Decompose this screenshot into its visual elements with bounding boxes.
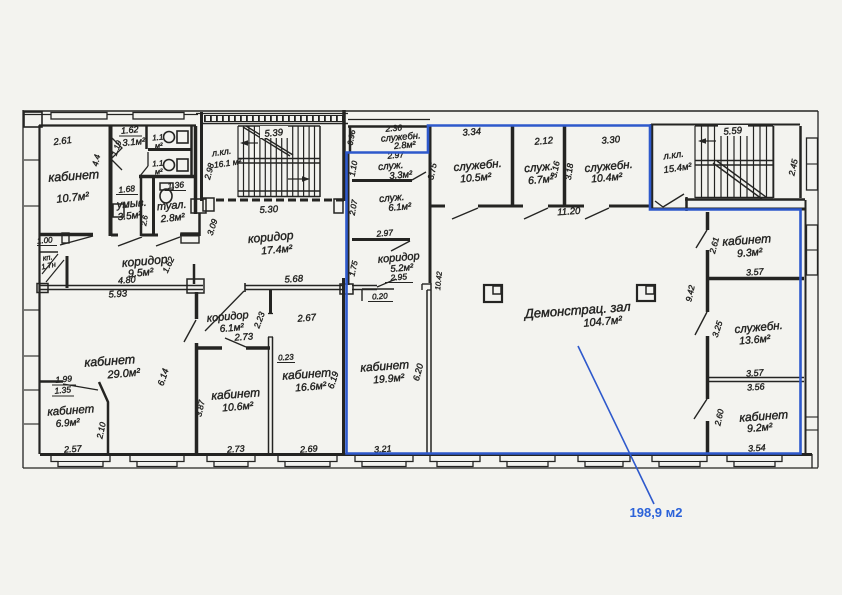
svg-text:5.39: 5.39 [264, 127, 284, 140]
svg-text:16.6м²: 16.6м² [295, 380, 328, 395]
svg-text:3.16: 3.16 [548, 160, 561, 179]
svg-text:кабинет: кабинет [47, 403, 95, 418]
svg-text:2.67: 2.67 [296, 312, 317, 325]
svg-text:10.7м²: 10.7м² [56, 190, 90, 205]
svg-text:3.30: 3.30 [601, 134, 621, 147]
svg-text:29.0м²: 29.0м² [106, 367, 141, 382]
svg-text:2.60: 2.60 [712, 408, 725, 428]
svg-text:2.69: 2.69 [299, 443, 318, 454]
svg-text:1.99: 1.99 [55, 373, 73, 384]
svg-text:3.1м²: 3.1м² [122, 136, 147, 149]
svg-text:3.75: 3.75 [425, 162, 438, 181]
svg-text:6.20: 6.20 [411, 362, 425, 382]
svg-text:2.57: 2.57 [63, 443, 83, 454]
svg-text:104.7м²: 104.7м² [583, 314, 623, 329]
svg-text:2.97: 2.97 [375, 227, 394, 239]
svg-text:3.34: 3.34 [462, 126, 481, 139]
svg-text:10.4м²: 10.4м² [591, 171, 624, 186]
svg-text:3.09: 3.09 [205, 217, 220, 236]
svg-text:1.35: 1.35 [54, 384, 72, 395]
svg-text:6.14: 6.14 [156, 367, 171, 387]
svg-text:3.54: 3.54 [748, 442, 766, 453]
svg-text:м²: м² [155, 141, 164, 151]
svg-text:1.10: 1.10 [348, 160, 360, 177]
svg-text:2.8м²: 2.8м² [159, 212, 186, 226]
svg-text:2.73: 2.73 [226, 443, 245, 454]
svg-text:3.25: 3.25 [710, 319, 725, 338]
svg-text:9.42: 9.42 [683, 284, 696, 303]
svg-text:15.4м²: 15.4м² [663, 161, 693, 176]
svg-text:1.7н: 1.7н [40, 260, 56, 272]
svg-text:2.6: 2.6 [139, 214, 150, 228]
svg-text:3.3м²: 3.3м² [389, 169, 414, 182]
svg-text:13.6м²: 13.6м² [739, 333, 772, 348]
svg-text:10.42: 10.42 [433, 270, 444, 290]
svg-text:10.5м²: 10.5м² [460, 171, 493, 186]
svg-text:17.4м²: 17.4м² [261, 243, 294, 258]
svg-text:3.56: 3.56 [747, 381, 765, 392]
svg-text:3.87: 3.87 [193, 399, 206, 418]
svg-text:6.1м²: 6.1м² [388, 201, 413, 214]
svg-text:198,9 м2: 198,9 м2 [630, 505, 683, 520]
svg-text:2.61: 2.61 [52, 135, 73, 148]
svg-text:2.61: 2.61 [707, 236, 721, 256]
svg-text:кабинет: кабинет [48, 167, 100, 185]
svg-text:1.62: 1.62 [121, 124, 139, 135]
svg-text:умыв.: умыв. [115, 197, 147, 212]
svg-text:3.57: 3.57 [746, 266, 765, 277]
svg-text:л.кл.: л.кл. [210, 146, 232, 159]
svg-text:2.73: 2.73 [233, 331, 254, 343]
svg-text:2.23: 2.23 [251, 310, 266, 330]
svg-text:19.9м²: 19.9м² [373, 372, 406, 387]
svg-text:2.12: 2.12 [533, 135, 554, 148]
svg-text:0.23: 0.23 [278, 352, 295, 362]
svg-text:5.93: 5.93 [108, 288, 128, 300]
svg-text:2.95: 2.95 [389, 271, 408, 283]
svg-text:9.3м²: 9.3м² [737, 246, 764, 260]
svg-text:м²: м² [155, 167, 164, 177]
svg-text:0.20: 0.20 [372, 291, 389, 301]
svg-text:0.96: 0.96 [346, 129, 358, 146]
svg-text:9.2м²: 9.2м² [747, 421, 774, 435]
svg-text:2.10: 2.10 [94, 421, 107, 441]
svg-text:кабинет: кабинет [211, 385, 261, 402]
svg-text:1.68: 1.68 [118, 183, 136, 195]
svg-text:10.6м²: 10.6м² [222, 400, 255, 415]
svg-text:кабинет: кабинет [722, 231, 772, 248]
svg-text:5.59: 5.59 [723, 125, 743, 138]
svg-text:11.20: 11.20 [557, 206, 581, 219]
svg-text:1.00: 1.00 [37, 235, 54, 245]
svg-text:5.68: 5.68 [284, 273, 304, 285]
svg-text:л.кл.: л.кл. [662, 149, 685, 163]
svg-text:5.30: 5.30 [259, 204, 279, 216]
svg-text:6.9м²: 6.9м² [55, 417, 81, 430]
svg-text:1.36: 1.36 [167, 179, 185, 190]
svg-text:2.98: 2.98 [202, 162, 216, 182]
svg-text:2.45: 2.45 [786, 158, 799, 178]
svg-text:4.4: 4.4 [90, 153, 102, 167]
svg-text:3.57: 3.57 [746, 367, 765, 378]
svg-text:4.80: 4.80 [118, 274, 136, 285]
